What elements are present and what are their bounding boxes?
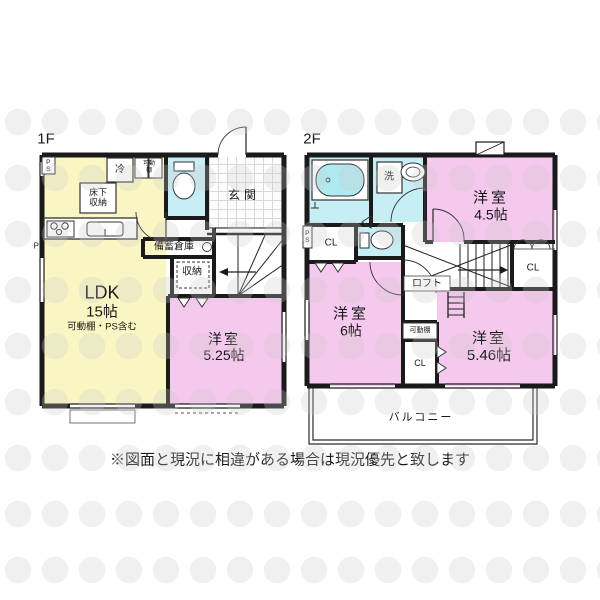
washbasin-icon [401, 163, 425, 181]
closet-mid-label: CL [414, 358, 426, 368]
laundry-label: 洗 [384, 171, 394, 183]
staircase-1f [219, 233, 284, 296]
loft-label: ロフト [412, 278, 442, 290]
bathtub-icon [316, 164, 364, 196]
ldk-name: LDK [67, 283, 137, 304]
disclaimer-note: ※図面と現況に相違がある場合は現況優先と致します [110, 451, 470, 468]
entrance-label: 玄関 [228, 189, 260, 203]
western-room-45-name: 洋室 [473, 189, 509, 206]
toilet-tank-1f [174, 162, 194, 171]
fridge-label: 冷 [115, 164, 125, 176]
ldk-sub: 可動棚・PS含む [67, 323, 137, 334]
western-room-546-name: 洋室 [467, 330, 511, 347]
closet-right-label: CL [527, 262, 540, 274]
toilet-tank-2f [360, 233, 369, 248]
storage-label: 収納 [182, 266, 202, 278]
stock-storage-icon [203, 243, 212, 252]
western-room-6-label: 洋室 6帖 [333, 305, 369, 338]
western-room-45-size: 4.5帖 [473, 207, 509, 223]
western-room-525-size: 5.25帖 [203, 347, 244, 363]
stairs-up-arrow-icon [500, 266, 508, 274]
toilet-bowl-1f-icon [173, 173, 195, 199]
western-room-45-label: 洋室 4.5帖 [473, 189, 509, 222]
toilet-bowl-2f-icon [371, 231, 393, 249]
western-room-6-name: 洋室 [333, 305, 369, 322]
floor2-plan [303, 142, 557, 444]
balcony-label: バルコニー [389, 412, 454, 425]
stock-storage-label: 備蓄倉庫 [154, 241, 194, 253]
western-room-546-label: 洋室 5.46帖 [467, 330, 511, 365]
underfloor-storage-label: 床下収納 [86, 188, 110, 209]
western-room-525-name: 洋室 [203, 331, 244, 347]
stairs-arrow-icon [219, 268, 228, 276]
entrance-door-arc [218, 127, 246, 155]
movable-shelf-label-1f: 可動棚 [143, 161, 156, 175]
ldk-label: LDK 15帖 可動棚・PS含む [67, 283, 137, 334]
floor1-label: 1F [37, 130, 55, 147]
ps-label-top: PS [44, 159, 51, 173]
western-room-525-label: 洋室 5.25帖 [203, 331, 244, 363]
floor2-label: 2F [303, 130, 321, 147]
closet-left-label: CL [325, 237, 338, 249]
floor1-plan [40, 127, 286, 423]
ldk-size: 15帖 [67, 303, 137, 320]
ps-label-2f: PS [303, 230, 310, 244]
western-room-546-size: 5.46帖 [467, 347, 511, 364]
movable-shelf-label-2f: 可動棚 [410, 327, 431, 335]
ps-label-side: PS [34, 241, 45, 250]
western-room-6-size: 6帖 [333, 323, 369, 339]
floorplan-page: 1F 床下収納 冷 可動棚 玄関 PS PS 備蓄倉庫 収納 LDK 15帖 可… [0, 0, 600, 600]
